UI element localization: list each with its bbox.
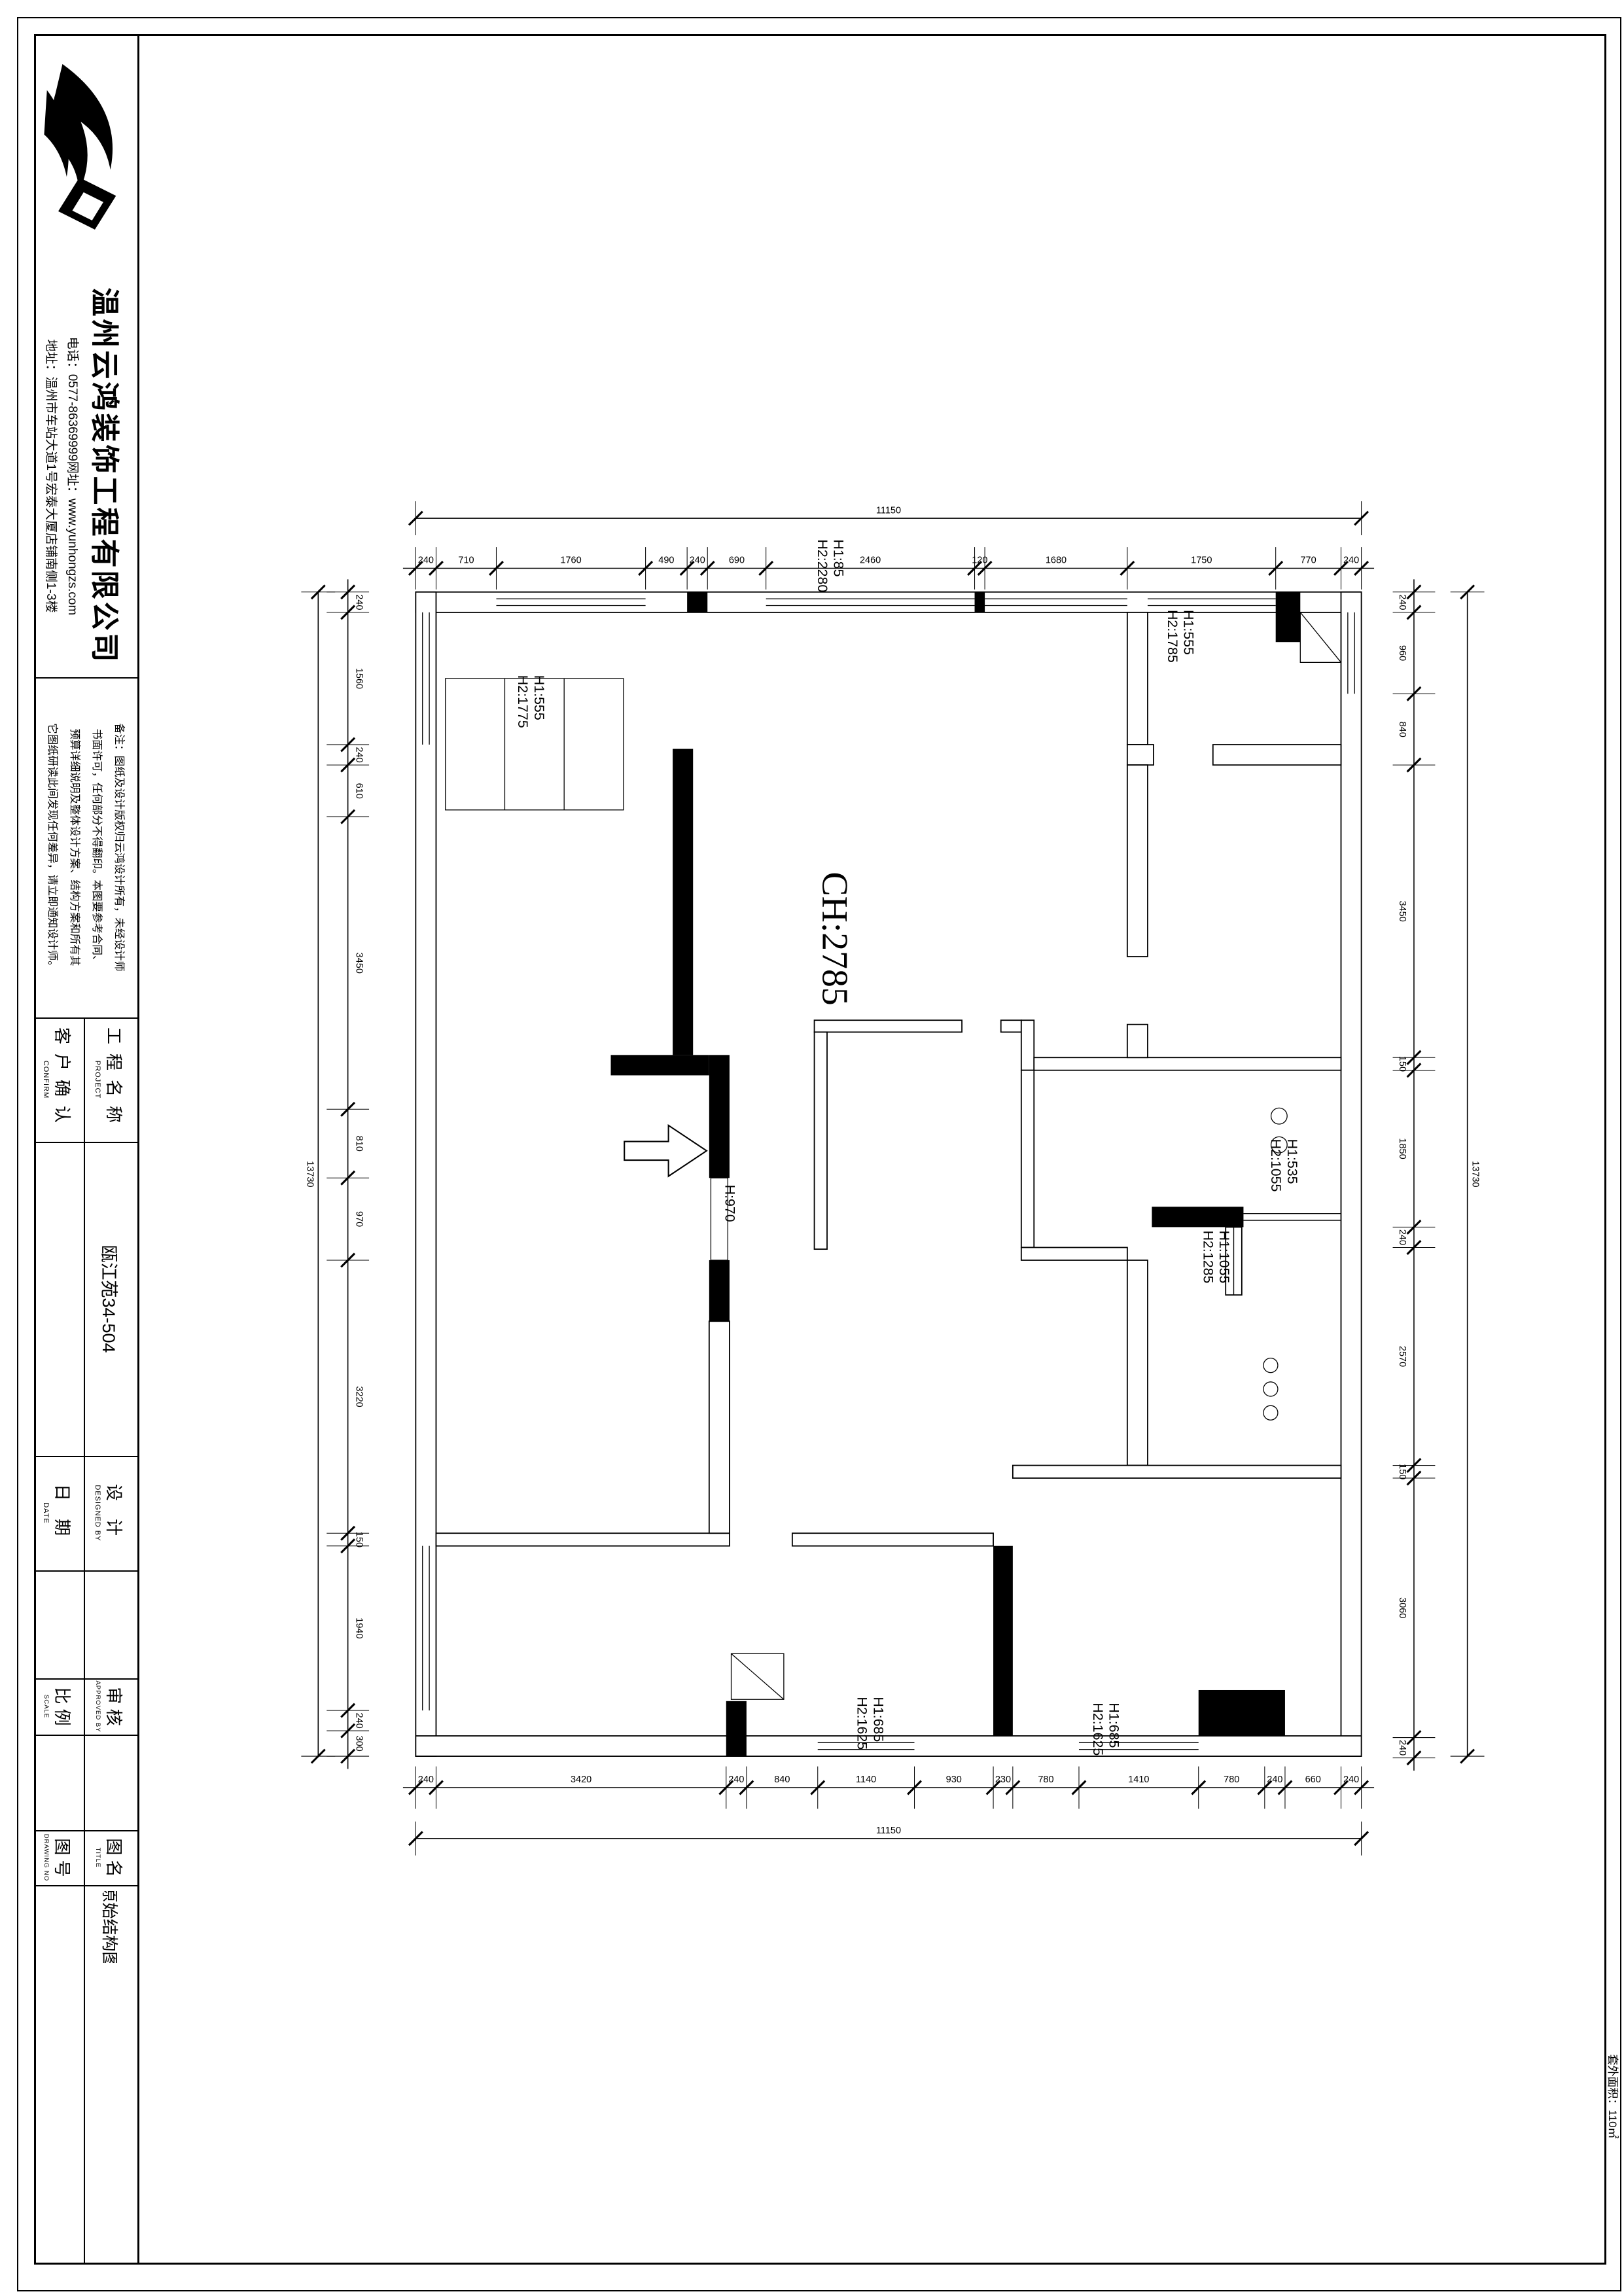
logo-mark bbox=[40, 49, 132, 265]
svg-text:1140: 1140 bbox=[856, 1775, 876, 1785]
date-label-cell: 日 期 DATE bbox=[34, 1456, 84, 1570]
note-line: 它图纸研读此间发现任何差异，请立即通知设计师。 bbox=[41, 723, 63, 972]
svg-text:840: 840 bbox=[1397, 722, 1407, 737]
approved-label: 审 核 bbox=[103, 1687, 127, 1725]
project-label-cell: 工程名称 PROJECT bbox=[84, 1017, 137, 1142]
floor-plan: CH:2785 H1:555H2:1775H1:85H2:2280H1:555H… bbox=[272, 444, 1497, 1894]
svg-text:660: 660 bbox=[1305, 1775, 1321, 1785]
svg-text:11150: 11150 bbox=[876, 505, 901, 516]
svg-text:1410: 1410 bbox=[1128, 1775, 1149, 1785]
svg-text:810: 810 bbox=[354, 1136, 364, 1152]
perimeter-walls bbox=[415, 592, 1361, 1756]
svg-text:H2:1785: H2:1785 bbox=[1165, 610, 1180, 663]
structural-walls bbox=[610, 592, 1300, 1756]
company-info-cell: 温州云鸿装饰工程有限公司 电话：0577-86369999网址：www.yunh… bbox=[34, 275, 137, 677]
scale-label-en: SCALE bbox=[43, 1695, 50, 1718]
svg-text:240: 240 bbox=[1397, 594, 1407, 610]
company-address: 地址：温州市车站大道1号宏泰大厦店铺南侧1-3楼 bbox=[43, 339, 61, 612]
svg-text:13730: 13730 bbox=[1470, 1161, 1480, 1187]
svg-text:960: 960 bbox=[1397, 645, 1407, 661]
designed-label: 设 计 bbox=[103, 1484, 128, 1542]
entry-arrow-icon bbox=[624, 1125, 707, 1176]
svg-text:240: 240 bbox=[1343, 1775, 1359, 1785]
svg-text:H2:1055: H2:1055 bbox=[1268, 1139, 1284, 1192]
svg-text:240: 240 bbox=[1397, 1740, 1407, 1756]
svg-text:1680: 1680 bbox=[1046, 556, 1067, 566]
title-label: 图 名 bbox=[103, 1838, 127, 1877]
confirm-label-en: CONFIRM bbox=[43, 1061, 50, 1099]
height-annotation: H1:535H2:1055 bbox=[1268, 1139, 1300, 1192]
svg-text:710: 710 bbox=[458, 556, 474, 566]
svg-text:H1:685: H1:685 bbox=[870, 1697, 886, 1742]
svg-text:690: 690 bbox=[729, 556, 745, 566]
svg-text:13730: 13730 bbox=[304, 1161, 315, 1187]
svg-text:H1:555: H1:555 bbox=[531, 675, 547, 720]
height-annotation: H:970 bbox=[722, 1185, 737, 1222]
svg-text:3450: 3450 bbox=[1397, 901, 1407, 922]
svg-text:1940: 1940 bbox=[354, 1617, 364, 1638]
drawingno-label-cell: 图 号 DRAWING NO bbox=[34, 1830, 84, 1885]
svg-text:3060: 3060 bbox=[1397, 1597, 1407, 1618]
svg-text:H1:685: H1:685 bbox=[1106, 1703, 1122, 1748]
company-phone: 电话：0577-86369999网址：www.yunhongzs.com bbox=[65, 337, 82, 616]
svg-text:1760: 1760 bbox=[560, 556, 581, 566]
dim-chain-bottom: 2403420240840114093023078014107802406602… bbox=[403, 1767, 1374, 1856]
note-line: 预算详细说明及整体设计方案、结构方案和所有其 bbox=[63, 729, 86, 966]
svg-text:120: 120 bbox=[972, 556, 987, 566]
project-label-en: PROJECT bbox=[94, 1061, 102, 1099]
svg-text:H1:1055: H1:1055 bbox=[1216, 1231, 1232, 1284]
area-note: 套外面积：110㎡ bbox=[1606, 2054, 1622, 2138]
svg-text:H2:1625: H2:1625 bbox=[1090, 1703, 1106, 1756]
svg-text:1850: 1850 bbox=[1397, 1138, 1407, 1159]
drawing-title: 原始结构图 bbox=[99, 1891, 122, 1963]
svg-text:240: 240 bbox=[690, 556, 705, 566]
approved-label-en: APPROVED BY bbox=[94, 1680, 101, 1732]
drawing-sheet: { "title_block": { "company_name": "温州云鸿… bbox=[0, 0, 1624, 2296]
project-value: 瓯江苑34-504 bbox=[98, 1245, 124, 1352]
designed-label-cell: 设 计 DESIGNED BY bbox=[84, 1456, 137, 1570]
note-line: 备注：图纸及设计版权归云鸿设计所有，未经设计师 bbox=[108, 723, 130, 972]
confirm-label-cell: 客户确认 CONFIRM bbox=[34, 1017, 84, 1142]
windows bbox=[423, 599, 1355, 1750]
svg-text:300: 300 bbox=[354, 1736, 364, 1752]
height-annotation: H1:555H2:1775 bbox=[515, 675, 547, 728]
svg-text:150: 150 bbox=[1397, 1056, 1407, 1072]
drawing-title-cell: 原始结构图 bbox=[84, 1891, 137, 1963]
svg-text:970: 970 bbox=[354, 1211, 364, 1227]
divider bbox=[34, 1570, 137, 1572]
project-value-cell: 瓯江苑34-504 bbox=[84, 1142, 137, 1456]
company-logo bbox=[34, 39, 137, 275]
svg-text:150: 150 bbox=[1397, 1464, 1407, 1479]
scale-label: 比 例 bbox=[51, 1687, 75, 1725]
svg-text:H1:555: H1:555 bbox=[1181, 610, 1197, 655]
svg-text:H1:535: H1:535 bbox=[1284, 1139, 1300, 1184]
ceiling-height-label: CH:2785 bbox=[815, 872, 855, 1005]
height-annotation: H1:1055H2:1285 bbox=[1201, 1231, 1233, 1284]
title-label-cell: 图 名 TITLE bbox=[84, 1830, 137, 1885]
designed-label-en: DESIGNED BY bbox=[94, 1485, 102, 1541]
divider bbox=[34, 1885, 137, 1886]
interior-walls bbox=[436, 612, 1341, 1546]
svg-text:240: 240 bbox=[418, 1775, 434, 1785]
svg-text:240: 240 bbox=[418, 556, 434, 566]
svg-text:230: 230 bbox=[995, 1775, 1011, 1785]
confirm-label: 客户确认 bbox=[52, 1027, 76, 1132]
height-annotation: H1:85H2:2280 bbox=[815, 539, 847, 592]
date-label: 日 期 bbox=[52, 1484, 76, 1542]
svg-text:610: 610 bbox=[354, 783, 364, 799]
svg-text:840: 840 bbox=[774, 1775, 790, 1785]
svg-text:1750: 1750 bbox=[1191, 556, 1212, 566]
dim-chain-top: 2407101760490240690246012016801750770240… bbox=[403, 501, 1374, 590]
svg-text:3450: 3450 bbox=[354, 953, 364, 974]
svg-text:H2:1775: H2:1775 bbox=[515, 675, 531, 728]
svg-text:770: 770 bbox=[1300, 556, 1316, 566]
svg-text:490: 490 bbox=[658, 556, 674, 566]
svg-text:H2:1285: H2:1285 bbox=[1201, 1231, 1216, 1284]
area-note-cell: 套外面积：110㎡ bbox=[1605, 2040, 1623, 2153]
notes-cell: 备注：图纸及设计版权归云鸿设计所有，未经设计师 书面许可，任何部分不得翻印。本图… bbox=[34, 677, 137, 1017]
dim-chain-left: 2401560240610345081097032201501940240300… bbox=[301, 579, 369, 1769]
svg-text:240: 240 bbox=[1343, 556, 1359, 566]
svg-text:240: 240 bbox=[354, 747, 364, 762]
titleblock-right-border bbox=[137, 34, 139, 2263]
svg-text:2460: 2460 bbox=[860, 556, 881, 566]
svg-text:240: 240 bbox=[1397, 1229, 1407, 1245]
drawingno-label: 图 号 bbox=[51, 1838, 75, 1877]
svg-text:240: 240 bbox=[354, 594, 364, 610]
svg-text:H2:2280: H2:2280 bbox=[815, 539, 830, 592]
drawingno-label-en: DRAWING NO bbox=[43, 1834, 50, 1881]
company-name: 温州云鸿装饰工程有限公司 bbox=[86, 288, 128, 665]
svg-text:H2:1625: H2:1625 bbox=[855, 1697, 870, 1750]
svg-text:3220: 3220 bbox=[354, 1386, 364, 1407]
svg-text:780: 780 bbox=[1038, 1775, 1053, 1785]
height-annotation: H1:555H2:1785 bbox=[1165, 610, 1197, 663]
svg-text:930: 930 bbox=[946, 1775, 962, 1785]
svg-text:780: 780 bbox=[1224, 1775, 1239, 1785]
date-label-en: DATE bbox=[43, 1502, 50, 1524]
note-line: 书面许可，任何部分不得翻印。本图要参考合同、 bbox=[86, 729, 108, 966]
svg-text:240: 240 bbox=[728, 1775, 744, 1785]
svg-text:240: 240 bbox=[1267, 1775, 1282, 1785]
dim-chain-right: 2409608403450150185024025701503060240137… bbox=[1393, 579, 1485, 1771]
svg-text:H1:85: H1:85 bbox=[830, 539, 846, 576]
svg-text:1560: 1560 bbox=[354, 668, 364, 689]
svg-text:240: 240 bbox=[354, 1713, 364, 1729]
svg-text:2570: 2570 bbox=[1397, 1346, 1407, 1367]
svg-text:3420: 3420 bbox=[571, 1775, 591, 1785]
title-label-en: TITLE bbox=[94, 1848, 101, 1868]
svg-text:11150: 11150 bbox=[876, 1826, 901, 1836]
svg-text:150: 150 bbox=[354, 1532, 364, 1547]
scale-label-cell: 比 例 SCALE bbox=[34, 1678, 84, 1735]
project-label: 工程名称 bbox=[103, 1027, 128, 1132]
svg-text:H:970: H:970 bbox=[722, 1185, 737, 1222]
approved-label-cell: 审 核 APPROVED BY bbox=[84, 1678, 137, 1735]
divider bbox=[34, 1735, 137, 1736]
